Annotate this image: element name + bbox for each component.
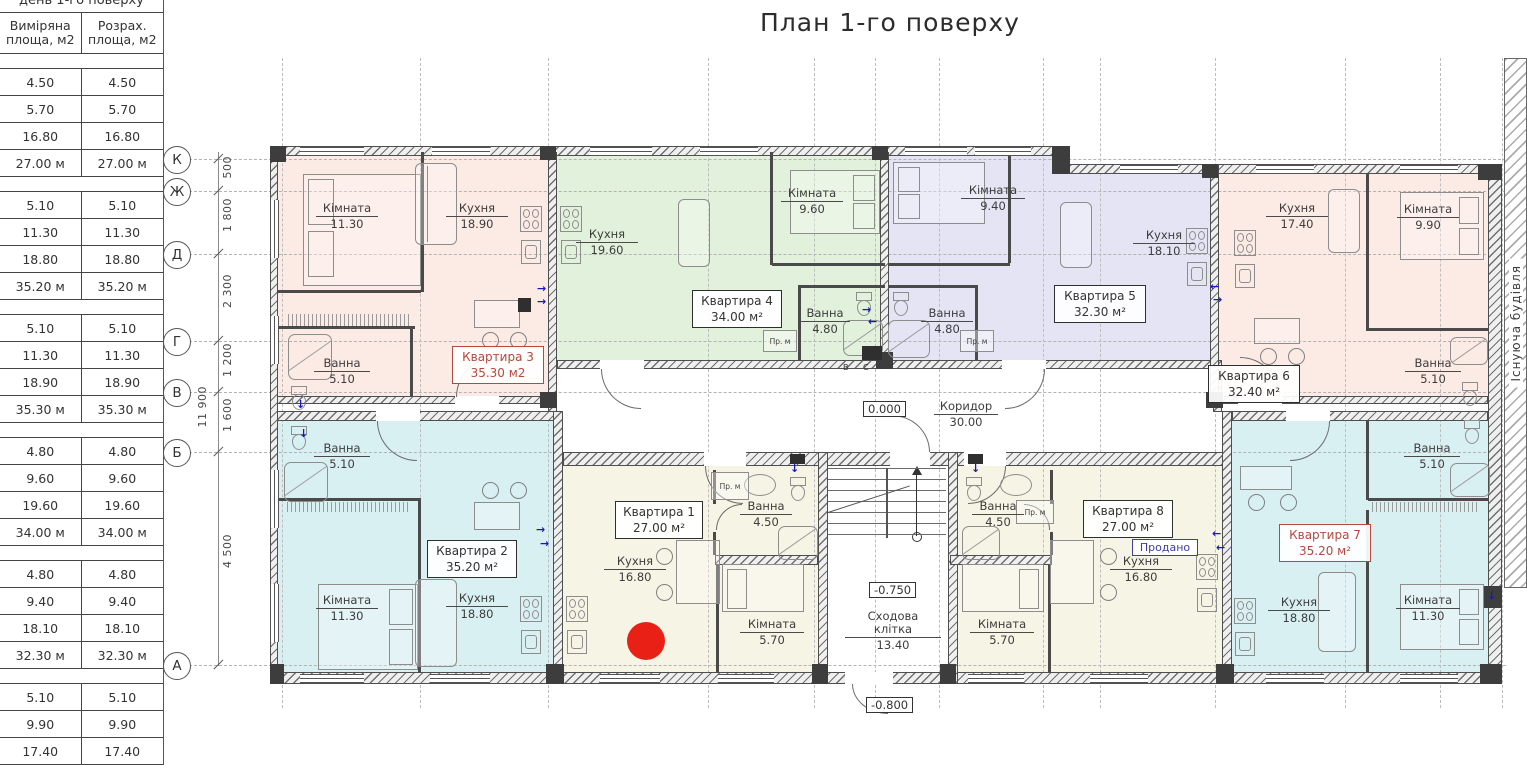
room-label-bath-apt3: Ванна5.10: [314, 357, 370, 386]
table-row: 5.105.10: [0, 192, 163, 219]
stove-icon: [520, 206, 542, 232]
toilet-icon: [1462, 382, 1478, 406]
room-label-kitchen-apt7: Кухня18.80: [1268, 596, 1330, 625]
table-row: 5.105.10: [0, 315, 163, 342]
partition: [772, 263, 885, 266]
apartment-4-label: Квартира 434.00 м²: [692, 290, 782, 328]
wall: [1232, 411, 1488, 421]
room-label-kitchen-apt8: Кухня16.80: [1110, 555, 1172, 584]
vent-arrow-icon: ↓: [790, 463, 799, 474]
window: [1256, 165, 1314, 174]
vent-shaft: [518, 298, 531, 312]
staircase: [828, 466, 948, 556]
vent-arrow-icon: →: [1213, 294, 1222, 305]
wall: [948, 452, 958, 684]
window: [300, 147, 364, 156]
axis-bubble-d: Д: [163, 241, 191, 269]
vent-arrow-icon: ↓: [1487, 590, 1496, 601]
pier: [540, 392, 557, 408]
shower-icon: [778, 526, 818, 560]
window: [270, 584, 279, 642]
wardrobe-hatch: [1372, 502, 1480, 512]
grid-line: [1100, 58, 1101, 708]
vent-arrow-icon: ←: [1210, 281, 1219, 292]
partition: [770, 152, 773, 265]
door-arc: [601, 369, 641, 409]
axis-bubble-a: А: [163, 652, 191, 680]
table-icon: [1050, 540, 1094, 604]
table-spacer: [0, 54, 163, 69]
axis-bubble-b: Б: [163, 439, 191, 467]
window: [590, 147, 652, 156]
room-label-kitchen-apt6: Кухня17.40: [1266, 202, 1328, 231]
room-label-bath-apt8: Ванна4.50: [972, 500, 1024, 529]
chair-icon: [1248, 494, 1265, 511]
window: [270, 470, 279, 528]
table-spacer: [0, 423, 163, 438]
door-arc: [1005, 369, 1045, 409]
existing-building: Існуюча будівля: [1504, 58, 1527, 588]
door-arc: [892, 415, 930, 452]
table-icon: [474, 502, 520, 530]
partition: [798, 285, 885, 288]
vent-arrow-icon: →: [540, 538, 549, 549]
table-total-row: 35.30 м35.30 м: [0, 396, 163, 423]
apartment-1-label: Квартира 127.00 м²: [615, 501, 703, 539]
partition: [410, 326, 413, 396]
door-opening: [890, 452, 930, 466]
vent-arrow-icon: ↓: [971, 463, 980, 474]
table-header: Виміряна площа, м2 Розрах. площа, м2: [0, 13, 163, 54]
table-row: 18.8018.80: [0, 246, 163, 273]
table-spacer: [0, 669, 163, 684]
wall: [277, 411, 563, 421]
door-opening: [1002, 360, 1046, 369]
sofa-icon: [1060, 202, 1092, 268]
pier: [1478, 164, 1502, 180]
grid-line: [1502, 58, 1503, 708]
stove-icon: [566, 596, 588, 622]
sink-icon: [521, 630, 541, 654]
partition: [1050, 470, 1053, 504]
bed-icon: [962, 564, 1044, 612]
apartment-8-label: Квартира 827.00 м²: [1083, 500, 1173, 538]
sink-icon: [1197, 588, 1217, 612]
room-label-kitchen-apt4: Кухня19.60: [576, 228, 638, 257]
vent-shaft: [862, 346, 882, 360]
table-icon: [676, 540, 720, 604]
chair-icon: [1288, 348, 1305, 365]
stove-icon: [1234, 230, 1256, 256]
sold-badge: Продано: [1132, 539, 1198, 556]
vent-arrow-icon: ←: [868, 316, 877, 327]
table-row: 5.705.70: [0, 96, 163, 123]
table-icon: [474, 300, 520, 328]
door-opening: [376, 411, 420, 421]
dim-1200: 1 200: [221, 343, 234, 377]
table-row: 9.409.40: [0, 588, 163, 615]
table-spacer: [0, 546, 163, 561]
sofa-icon: [678, 199, 710, 267]
vent-arrow-icon: ↓: [296, 399, 305, 410]
chair-icon: [1260, 348, 1277, 365]
washbasin-icon: [1000, 474, 1032, 496]
axis-line-g: [164, 341, 1506, 342]
shower-icon: [962, 526, 1000, 560]
apartment-2-label: Квартира 235.20 м²: [427, 540, 517, 578]
room-label-bedroom-apt3: Кімната11.30: [316, 202, 378, 231]
table-row: 9.909.90: [0, 711, 163, 738]
chair-icon: [656, 584, 673, 601]
riser-label-v: В: [843, 363, 849, 372]
room-label-kitchen-apt2: Кухня18.80: [446, 592, 508, 621]
window: [1090, 674, 1148, 683]
table-row: 11.3011.30: [0, 342, 163, 369]
sink-icon: [521, 240, 541, 264]
table-spacer: [0, 300, 163, 315]
vent-arrow-icon: →: [862, 304, 871, 315]
level-mark-entry: -0.800: [866, 697, 913, 713]
vent-arrow-icon: ↓: [299, 428, 308, 439]
door-opening: [600, 360, 644, 369]
sink-icon: [1235, 632, 1255, 656]
stove-icon: [520, 596, 542, 622]
window: [270, 200, 279, 258]
table-header-calculated: Розрах. площа, м2: [82, 13, 164, 53]
dimension-line: [218, 152, 219, 666]
window: [430, 674, 490, 683]
window: [270, 316, 279, 364]
axis-line-v: [164, 392, 1506, 393]
stove-icon: [1234, 598, 1256, 624]
window: [600, 674, 660, 683]
pier: [270, 664, 284, 684]
chair-icon: [1280, 494, 1297, 511]
room-label-staircase: Сходова клітка13.40: [845, 610, 941, 652]
sink-icon: [1187, 262, 1207, 286]
table-row: 4.804.80: [0, 561, 163, 588]
vent-arrow-icon: →: [537, 296, 546, 307]
partition: [889, 285, 977, 288]
dim-4500: 4 500: [221, 534, 234, 568]
dim-2300: 2 300: [221, 274, 234, 308]
axis-bubble-zh: Ж: [163, 178, 191, 206]
apartment-5-label: Квартира 532.30 м²: [1054, 285, 1146, 323]
room-label-bath-apt4: Ванна4.80: [800, 307, 850, 336]
wall: [277, 396, 548, 404]
pier: [872, 146, 888, 160]
stove-icon: [1196, 554, 1218, 580]
table-row: 18.9018.90: [0, 369, 163, 396]
toilet-icon: [1464, 420, 1480, 444]
pier: [1480, 664, 1502, 684]
apartment-6-label: Квартира 632.40 м²: [1208, 365, 1300, 403]
riser-label-c: С: [863, 363, 869, 372]
sink-icon: [567, 630, 587, 654]
table-row: 9.609.60: [0, 465, 163, 492]
table-spacer: [0, 177, 163, 192]
room-label-bath-apt1: Ванна4.50: [740, 500, 792, 529]
partition: [1366, 174, 1369, 330]
partition: [889, 263, 1010, 266]
table-icon: [1240, 466, 1292, 490]
page-title: План 1-го поверху: [700, 8, 1080, 37]
window: [1400, 165, 1458, 174]
wardrobe-hatch: [287, 502, 410, 512]
room-label-bedroom-apt6: Кімната9.90: [1397, 203, 1459, 232]
table-row: 4.804.80: [0, 438, 163, 465]
toilet-icon: [893, 292, 909, 316]
room-label-kitchen-apt1: Кухня16.80: [604, 555, 666, 584]
pier: [546, 664, 564, 684]
vent-arrow-icon: →: [536, 524, 545, 535]
room-label-bedroom-apt4: Кімната9.60: [781, 187, 843, 216]
axis-line-k: [164, 159, 1506, 160]
wall: [548, 152, 557, 396]
wall: [818, 452, 828, 684]
room-label-kitchen-apt3: Кухня18.90: [446, 202, 508, 231]
table-row: 4.504.50: [0, 69, 163, 96]
vent-arrow-icon: ←: [1216, 542, 1225, 553]
toilet-icon: [790, 477, 806, 501]
dim-1800: 1 800: [221, 198, 234, 232]
partition: [277, 290, 421, 293]
level-mark-zero: 0.000: [863, 401, 906, 417]
dim-500: 500: [221, 156, 234, 179]
window: [1266, 674, 1324, 683]
room-label-bath-apt6: Ванна5.10: [1405, 357, 1461, 386]
pier: [540, 146, 556, 160]
vent-arrow-icon: →: [537, 283, 546, 294]
table-row: 19.6019.60: [0, 492, 163, 519]
room-label-bedroom-apt8: Кімната5.70: [970, 618, 1034, 647]
table-icon: [1254, 318, 1300, 344]
chair-icon: [510, 482, 527, 499]
table-total-row: 34.00 м34.00 м: [0, 519, 163, 546]
pier: [940, 664, 956, 684]
table-row: 16.8016.80: [0, 123, 163, 150]
window: [718, 674, 774, 683]
table-total-row: 35.20 м35.20 м: [0, 273, 163, 300]
table-row: 11.3011.30: [0, 219, 163, 246]
chair-icon: [482, 482, 499, 499]
table-row: 18.1018.10: [0, 615, 163, 642]
window: [432, 147, 490, 156]
dim-1600: 1 600: [221, 398, 234, 432]
entrance-opening: [845, 672, 893, 684]
stair-arrow-line: [916, 472, 917, 536]
window: [300, 674, 364, 683]
sink-icon: [1235, 264, 1255, 288]
axis-bubble-k: К: [163, 146, 191, 174]
wall: [553, 411, 563, 672]
door-opening: [1286, 411, 1330, 421]
room-label-bath-apt2: Ванна5.10: [314, 442, 370, 471]
table-header-measured: Виміряна площа, м2: [0, 13, 82, 53]
axis-bubble-g: Г: [163, 328, 191, 356]
window: [905, 147, 967, 156]
room-label-bath-apt7: Ванна5.10: [1404, 442, 1460, 471]
table-row: 17.4017.40: [0, 738, 163, 765]
apartment-3-label: Квартира 335.30 м2: [452, 346, 544, 384]
partition: [277, 326, 415, 329]
partition: [1366, 421, 1369, 500]
table-total-row: 32.30 м32.30 м: [0, 642, 163, 669]
room-label-bath-apt5: Ванна4.80: [921, 307, 973, 336]
room-label-bedroom-apt7: Кімната11.30: [1396, 594, 1460, 623]
room-label-bedroom-apt5: Кімната9.40: [961, 184, 1025, 213]
dim-overall: 11 900: [196, 386, 209, 428]
wardrobe-hatch: [288, 314, 412, 326]
toilet-icon: [966, 477, 982, 501]
vent-arrow-icon: ←: [1212, 528, 1221, 539]
partition: [1366, 328, 1488, 331]
door-opening: [455, 396, 499, 404]
door-opening: [704, 452, 746, 466]
pier: [812, 664, 828, 684]
window: [968, 674, 1024, 683]
table-clipped-title: день 1-го поверху: [0, 0, 163, 13]
pier: [1202, 164, 1218, 178]
level-mark-upper: -0.750: [869, 582, 916, 598]
table-row: 5.105.10: [0, 684, 163, 711]
bed-icon: [722, 564, 804, 612]
washing-machine-icon: Пр. м: [763, 330, 797, 352]
room-label-bedroom-apt1: Кімната5.70: [740, 618, 804, 647]
pier: [270, 146, 286, 162]
window: [1120, 165, 1178, 174]
pier: [1216, 664, 1234, 684]
axis-bubble-v: В: [163, 379, 191, 407]
table-total-row: 27.00 м27.00 м: [0, 150, 163, 177]
window: [700, 147, 758, 156]
window: [975, 147, 1031, 156]
area-table: день 1-го поверху Виміряна площа, м2 Роз…: [0, 0, 164, 765]
floor-plan-drawing: { "title": "План 1-го поверху", "table":…: [0, 0, 1527, 720]
sofa-icon: [1328, 189, 1360, 253]
room-label-corridor: Коридор30.00: [934, 400, 998, 429]
apartment-7-label: Квартира 735.20 м²: [1279, 524, 1371, 562]
chair-icon: [1100, 584, 1117, 601]
room-label-bedroom-apt2: Кімната11.30: [316, 594, 378, 623]
stair-divider: [886, 468, 888, 538]
window: [1400, 674, 1458, 683]
room-label-kitchen-apt5: Кухня18.10: [1133, 229, 1195, 258]
washing-machine-icon: Пр. м: [711, 472, 749, 500]
location-marker[interactable]: [627, 622, 665, 660]
partition: [1368, 498, 1488, 501]
existing-building-label: Існуюча будівля: [1509, 259, 1523, 388]
pier: [1052, 146, 1070, 174]
